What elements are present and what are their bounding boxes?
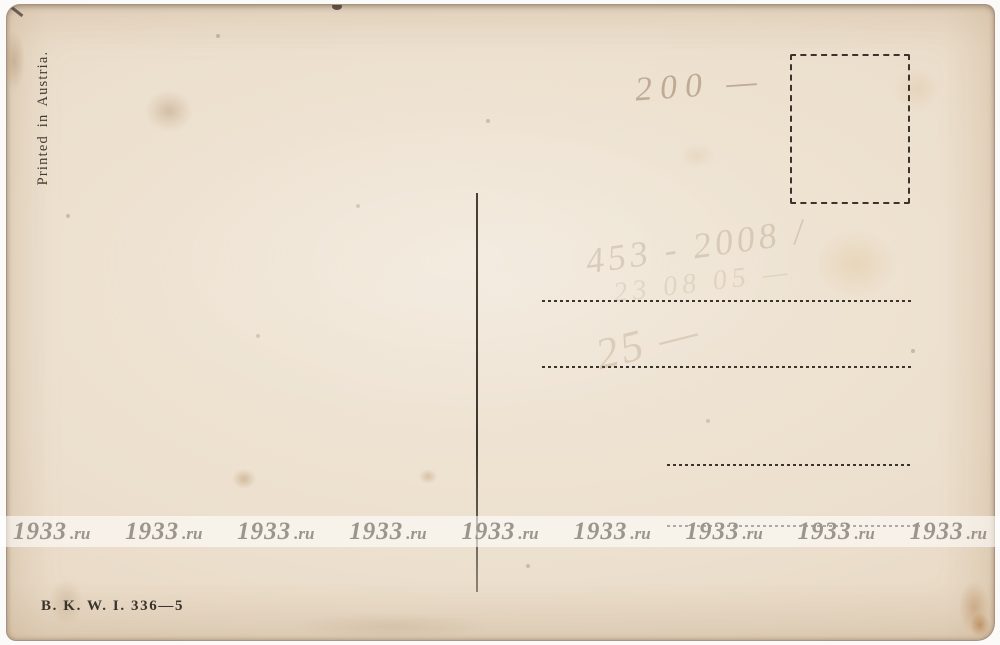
- address-line: [667, 464, 912, 466]
- stain: [959, 581, 989, 633]
- stain: [970, 613, 990, 637]
- edge-nick: [332, 4, 342, 10]
- publisher-code: B. K. W. I. 336—5: [41, 598, 184, 615]
- pencil-note: 25 —: [590, 305, 705, 380]
- paper-specks: [7, 5, 9, 7]
- address-line: [667, 525, 920, 527]
- stain: [813, 229, 898, 299]
- stain: [679, 143, 715, 169]
- stain: [145, 90, 193, 132]
- divider-line: [476, 193, 478, 592]
- pencil-price-note: 200 —: [634, 63, 766, 110]
- stain: [291, 613, 491, 639]
- printed-in-austria-label: Printed in Austria.: [35, 33, 55, 203]
- stamp-box: [790, 54, 910, 204]
- stain: [232, 469, 256, 489]
- stain: [419, 469, 437, 484]
- stain: [6, 31, 25, 91]
- address-line: [542, 366, 914, 368]
- pencil-note: 453 - 2008 /: [583, 210, 810, 283]
- address-line: [542, 300, 914, 302]
- scan-background: Printed in Austria. 200 — 453 - 2008 / 2…: [0, 0, 1000, 645]
- postcard-back: Printed in Austria. 200 — 453 - 2008 / 2…: [6, 4, 995, 641]
